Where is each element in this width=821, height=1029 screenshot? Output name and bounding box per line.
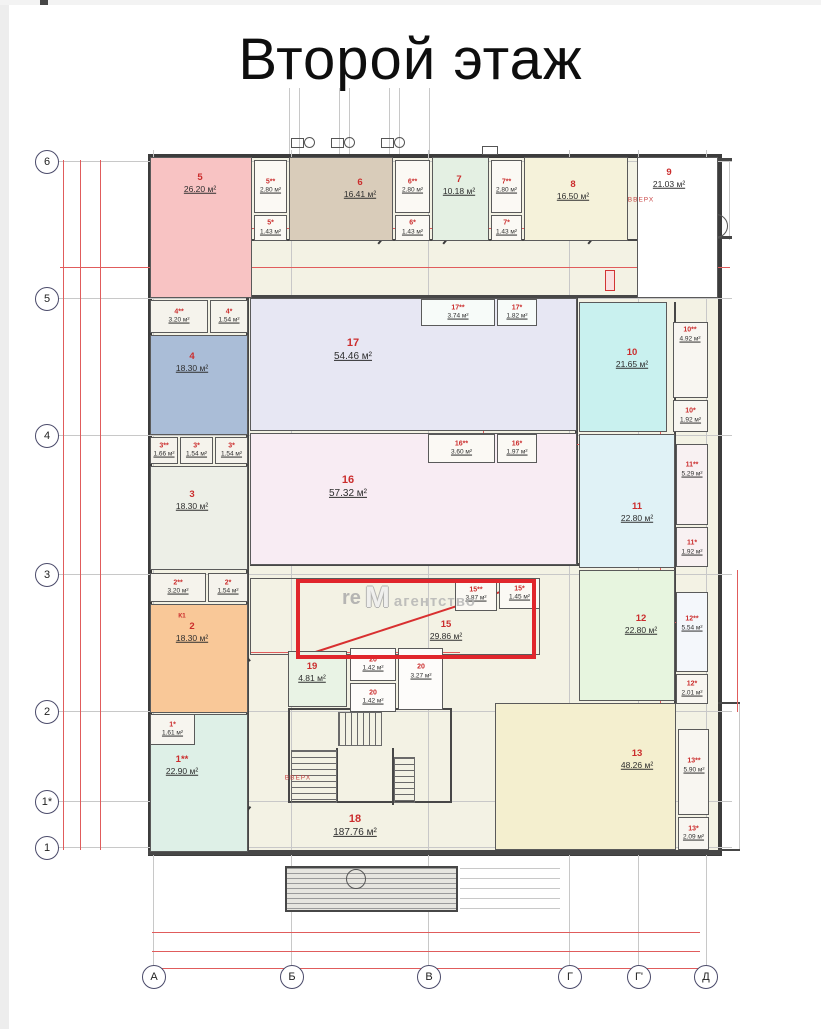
room-11**: [676, 444, 708, 525]
room-4**: [150, 300, 208, 333]
room-10: [579, 302, 667, 432]
room-4: [150, 335, 248, 435]
axis-col-Д: Д: [694, 965, 718, 989]
shape-c: [394, 137, 405, 148]
room-3: [150, 466, 248, 570]
room-16**: [428, 434, 495, 463]
shape-c: [346, 869, 366, 889]
shape-r: [80, 160, 81, 850]
room-3*: [180, 437, 213, 464]
shape-hatch: [285, 866, 458, 912]
axis-row-5: 5: [35, 287, 59, 311]
room-5: [150, 157, 252, 298]
axis-col-Г: Г: [558, 965, 582, 989]
axis-row-6: 6: [35, 150, 59, 174]
room-2: [150, 604, 248, 713]
room-2*: [208, 573, 248, 602]
axis-row-2: 2: [35, 700, 59, 724]
room-19: [288, 651, 347, 707]
room-15**: [455, 578, 497, 611]
shape-b: [381, 138, 394, 148]
room-17**: [421, 299, 495, 326]
axis-row-4: 4: [35, 424, 59, 448]
shape-b: [482, 146, 498, 155]
room-10*: [673, 400, 708, 432]
room-7*: [491, 215, 522, 241]
room-16*: [497, 434, 537, 463]
scan-edge-left: [0, 0, 9, 1029]
annotation-ВВЕРХ: ВВЕРХ: [628, 197, 654, 204]
room-4*: [210, 300, 248, 333]
shape-r: [152, 932, 700, 933]
shape-w: [40, 0, 48, 5]
axis-col-В: В: [417, 965, 441, 989]
room-12**: [676, 592, 708, 672]
shape-c: [344, 137, 355, 148]
shape-r: [737, 570, 738, 712]
floor-plan-page: Второй этаж 18187.76 м²1529.86 м²526.20 …: [0, 0, 821, 1029]
shape-b: [291, 138, 304, 148]
room-5**: [254, 160, 287, 213]
room-20: [350, 648, 396, 681]
room-13**: [678, 729, 709, 815]
axis-col-Б: Б: [280, 965, 304, 989]
room-9: [637, 157, 718, 298]
room-15*: [499, 578, 540, 609]
room-10**: [673, 322, 708, 398]
room-2**: [150, 573, 206, 602]
shape-g: [460, 888, 560, 889]
room-6: [289, 157, 393, 241]
room-12: [579, 570, 675, 701]
shape-w: [718, 849, 740, 851]
axis-row-1*: 1*: [35, 790, 59, 814]
room-17*: [497, 299, 537, 326]
room-8: [524, 157, 628, 241]
shape-g: [429, 88, 430, 154]
room-20: [398, 648, 443, 710]
room-11: [579, 434, 675, 568]
room-3*: [215, 437, 248, 464]
room-6*: [395, 215, 430, 241]
shape-g: [739, 702, 740, 851]
shape-g: [460, 898, 560, 899]
room-11*: [676, 527, 708, 567]
shape-g: [729, 160, 730, 240]
shape-g: [460, 878, 560, 879]
annotation-ВВЕРХ: ВВЕРХ: [285, 775, 311, 782]
room-13*: [678, 817, 709, 850]
room-5*: [254, 215, 287, 241]
page-title: Второй этаж: [0, 26, 821, 93]
room-12*: [676, 674, 708, 704]
shape-r: [63, 160, 64, 850]
shape-b: [331, 138, 344, 148]
axis-row-1: 1: [35, 836, 59, 860]
scan-edge-top: [0, 0, 821, 5]
room-6**: [395, 160, 430, 213]
room-13: [495, 703, 676, 850]
shape-r: [152, 951, 700, 952]
shape-rb: [605, 270, 615, 291]
shape-r: [100, 160, 101, 850]
axis-col-Г': Г': [627, 965, 651, 989]
shape-g: [289, 88, 290, 154]
shape-c: [304, 137, 315, 148]
room-3**: [150, 437, 178, 464]
room-20: [350, 683, 396, 712]
room-7: [432, 157, 489, 241]
room-7**: [491, 160, 522, 213]
axis-col-А: А: [142, 965, 166, 989]
annotation-К1: К1: [178, 613, 186, 620]
shape-g: [460, 868, 560, 869]
room-1*: [150, 714, 195, 745]
shape-g: [460, 908, 560, 909]
axis-row-3: 3: [35, 563, 59, 587]
shape-w: [718, 158, 732, 161]
